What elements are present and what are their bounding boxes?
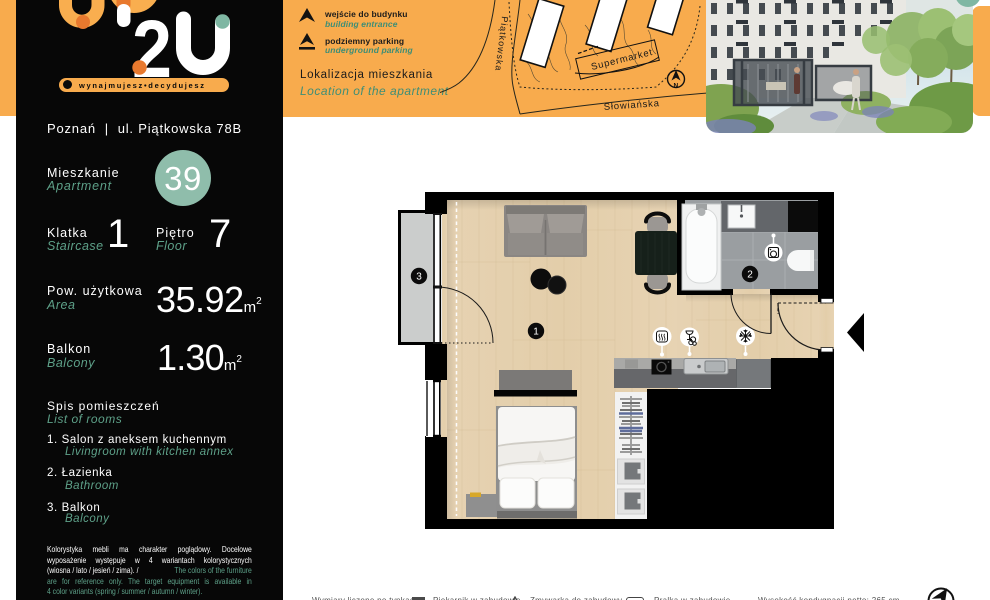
svg-text:Słowiańska: Słowiańska xyxy=(603,98,660,113)
svg-text:N: N xyxy=(674,83,679,90)
svg-text:2: 2 xyxy=(747,270,753,281)
svg-text:Piątkowska: Piątkowska xyxy=(493,16,510,72)
svg-text:1: 1 xyxy=(533,327,539,338)
svg-text:3: 3 xyxy=(416,272,422,283)
